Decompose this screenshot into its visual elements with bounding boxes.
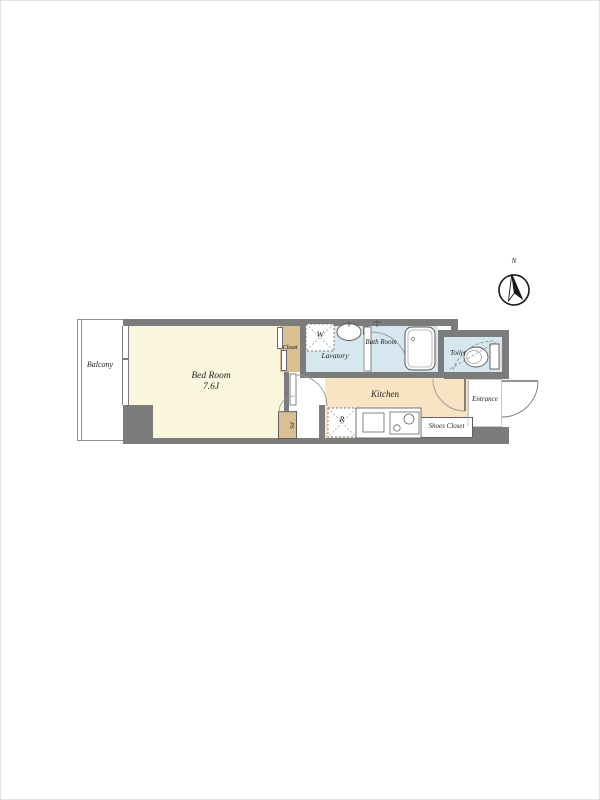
- kitchen-label: Kitchen: [353, 389, 417, 399]
- closet-sliding-door: [281, 350, 287, 371]
- bedroom-size: 7.6J: [159, 382, 263, 393]
- shoes-closet-label: Shoes Closet: [420, 422, 473, 430]
- pipe-space-label: PS: [282, 414, 294, 437]
- compass-icon: [497, 272, 531, 307]
- bedroom-window: [122, 326, 129, 405]
- wall: [300, 372, 446, 378]
- window-mullion: [122, 358, 129, 360]
- bedroom-name: Bed Room: [159, 371, 263, 382]
- wall: [438, 330, 509, 337]
- bathroom-label: Bath Room: [365, 338, 397, 346]
- washer-label: W: [306, 330, 334, 340]
- bedroom-label: Bed Room 7.6J: [159, 371, 263, 393]
- floor-plan: Balcony PS Shoes Closet: [0, 0, 600, 800]
- wall: [123, 319, 458, 326]
- entrance-door: [502, 381, 538, 417]
- toilet-label: Toilet: [445, 349, 471, 357]
- entrance-label: Entrance: [466, 395, 504, 403]
- wall: [444, 372, 509, 379]
- wall-pillar: [123, 405, 153, 438]
- compass-north-label: N: [505, 257, 523, 265]
- wall: [123, 438, 509, 444]
- balcony-edge-line: [81, 320, 82, 440]
- wall: [319, 405, 325, 438]
- refrigerator-label: R: [328, 415, 356, 424]
- wall: [363, 325, 369, 335]
- balcony-room: [77, 319, 124, 441]
- balcony-label: Balcony: [77, 360, 123, 369]
- wall: [284, 372, 289, 413]
- lavatory-label: Lavatory: [307, 352, 363, 361]
- wall: [468, 427, 509, 438]
- bathroom-floor: [369, 325, 438, 372]
- wall: [438, 330, 444, 378]
- closet-label: Closet: [277, 344, 303, 351]
